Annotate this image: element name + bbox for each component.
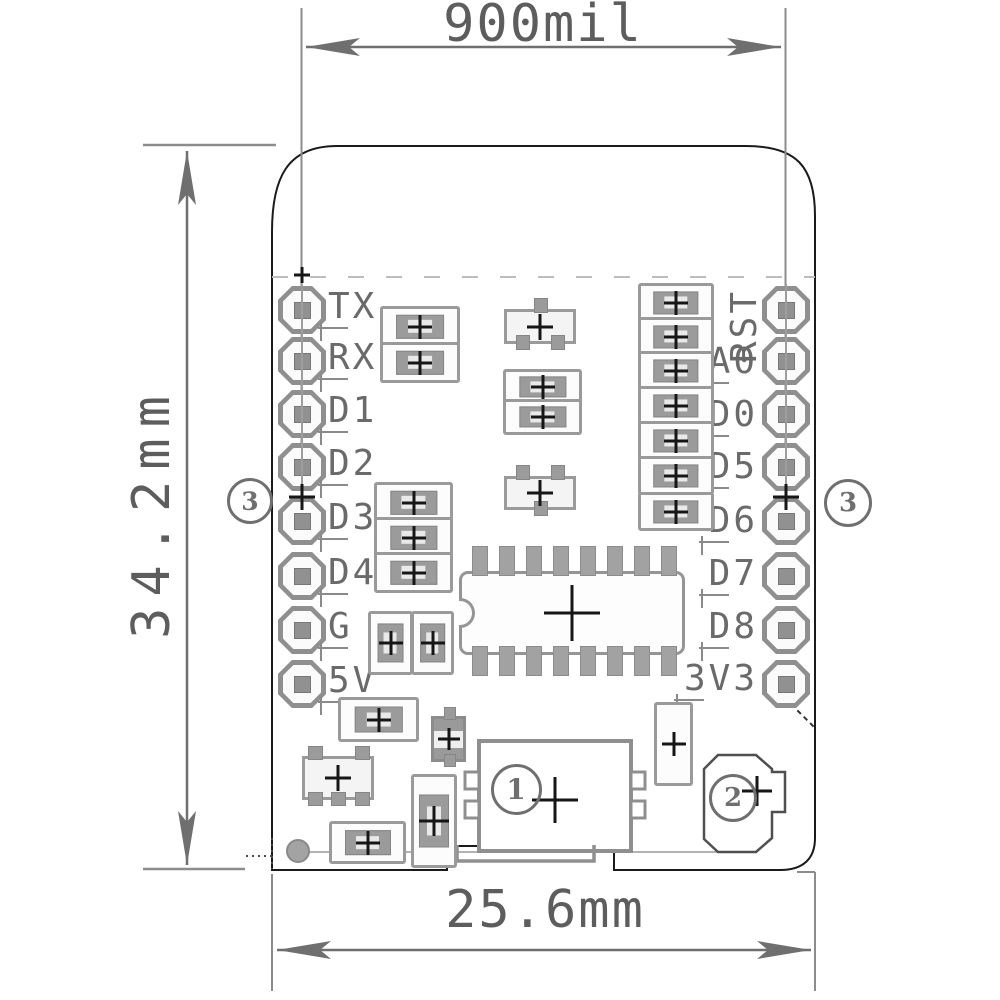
crosshair <box>664 394 688 418</box>
crosshair <box>294 267 310 283</box>
pin-label-RX: RX <box>328 337 377 385</box>
smd-resistor <box>338 697 419 742</box>
ic-pin <box>661 546 677 576</box>
pad-hole <box>778 622 795 639</box>
smd-resistor <box>411 611 454 675</box>
component-box <box>654 702 693 786</box>
crosshair <box>527 314 553 340</box>
pin-label-D2: D2 <box>328 443 377 491</box>
crosshair <box>664 464 688 488</box>
pin-label-D8: D8 <box>709 606 758 654</box>
ic-pin <box>607 546 623 576</box>
dimension-top-label: 900mil <box>393 0 693 54</box>
ic-pin <box>553 646 569 676</box>
transistor-sot23 <box>504 309 576 344</box>
regulator-leg <box>355 746 370 760</box>
callout-circle-3: 3 <box>824 479 872 527</box>
pad-hole <box>778 568 795 585</box>
ic-pin <box>526 646 542 676</box>
pcb-dimension-diagram: 900mil 34.2mm 25.6mm TXRXD1D2D3D4G5VRSTA… <box>0 0 1000 1000</box>
crosshair <box>289 484 315 510</box>
ic-pin <box>661 646 677 676</box>
pin-label-3V3: 3V3 <box>684 658 758 706</box>
pad-hole <box>778 676 795 693</box>
crosshair <box>664 359 688 383</box>
ic-pin <box>472 546 488 576</box>
smd-resistor <box>503 399 582 435</box>
pad-hole <box>778 513 795 530</box>
smd-resistor <box>368 611 413 675</box>
pad-hole <box>294 568 311 585</box>
regulator-leg <box>331 792 346 806</box>
regulator-leg <box>355 792 370 806</box>
header-pad-right-6 <box>762 606 810 654</box>
smd-resistor <box>411 774 457 868</box>
crosshair <box>402 561 426 585</box>
pad-ring <box>283 665 322 704</box>
crosshair <box>664 500 688 524</box>
regulator-leg <box>308 746 323 760</box>
crosshair <box>544 585 600 641</box>
callout-circle-3: 3 <box>227 478 273 524</box>
dimension-bottom-label: 25.6mm <box>395 880 695 940</box>
usb-tab-left-bottom <box>465 801 479 818</box>
crosshair <box>662 732 686 756</box>
pad-ring <box>767 611 806 650</box>
fiducial-dot <box>286 839 310 863</box>
usb-tab-left-top <box>465 772 479 789</box>
pin-label-TX: TX <box>328 286 377 334</box>
pad-hole <box>294 513 311 530</box>
crosshair <box>379 631 403 655</box>
dimension-side-label: 34.2mm <box>122 362 182 662</box>
pin-label-D3: D3 <box>328 497 377 545</box>
pad-ring <box>283 611 322 650</box>
ic-pin <box>472 646 488 676</box>
transistor-leg <box>534 298 548 313</box>
crosshair <box>402 526 426 550</box>
crosshair <box>773 484 799 510</box>
header-pad-right-7 <box>762 660 810 708</box>
regulator-sot25 <box>302 756 374 800</box>
pad-hole <box>294 676 311 693</box>
crosshair <box>531 375 555 399</box>
crosshair <box>527 480 553 506</box>
callout-circle-1: 1 <box>491 764 542 815</box>
usb-tab-right-bottom <box>631 801 645 818</box>
crosshair <box>325 765 351 791</box>
crosshair <box>664 291 688 315</box>
smd-resistor <box>374 552 453 593</box>
ic-pin <box>634 546 650 576</box>
smd-resistor <box>638 492 714 531</box>
smd-resistor <box>638 386 714 425</box>
pad-ring <box>767 665 806 704</box>
ic-pin <box>634 646 650 676</box>
ic-pin <box>607 646 623 676</box>
smd-resistor <box>638 351 714 390</box>
ic-pin <box>553 546 569 576</box>
crosshair <box>664 325 688 349</box>
header-pad-right-5 <box>762 552 810 600</box>
ic-pin <box>499 546 515 576</box>
smd-resistor <box>638 421 714 460</box>
pad-hole <box>294 622 311 639</box>
crosshair <box>438 728 460 750</box>
crosshair <box>367 708 391 732</box>
regulator-leg <box>308 792 323 806</box>
transistor-leg <box>551 465 565 480</box>
smd-resistor <box>638 456 714 495</box>
pin-label-D0: D0 <box>709 394 758 442</box>
transistor-leg <box>516 465 530 480</box>
crosshair <box>408 315 432 339</box>
pin-label-A0: A0 <box>709 341 758 389</box>
smd-resistor <box>329 821 406 864</box>
diode-leg <box>444 707 456 720</box>
crosshair <box>531 405 555 429</box>
smd-resistor <box>380 306 460 347</box>
crosshair <box>402 491 426 515</box>
ic-soic16 <box>459 571 685 655</box>
ic-pin <box>499 646 515 676</box>
crosshair <box>408 351 432 375</box>
pad-ring <box>283 557 322 596</box>
ic-pin <box>580 646 596 676</box>
crosshair <box>421 631 445 655</box>
pin-label-G: G <box>328 606 353 654</box>
pin-label-D4: D4 <box>328 552 377 600</box>
crosshair <box>356 831 380 855</box>
pin-label-D7: D7 <box>709 553 758 601</box>
crosshair <box>419 806 449 836</box>
transistor-sot23 <box>504 476 576 510</box>
pin-label-D5: D5 <box>709 446 758 494</box>
callout-circle-2: 2 <box>709 774 757 822</box>
ic-pin1-notch <box>459 598 475 628</box>
smd-resistor <box>380 342 460 383</box>
usb-tab-right-top <box>631 772 645 789</box>
pad-ring <box>767 557 806 596</box>
diode-leg <box>444 754 456 767</box>
diode <box>431 716 466 762</box>
header-centerline <box>301 284 303 504</box>
ic-pin <box>526 546 542 576</box>
ic-pin <box>580 546 596 576</box>
header-centerline <box>785 284 787 504</box>
crosshair <box>664 429 688 453</box>
pin-label-D1: D1 <box>328 390 377 438</box>
pin-label-D6: D6 <box>709 500 758 548</box>
